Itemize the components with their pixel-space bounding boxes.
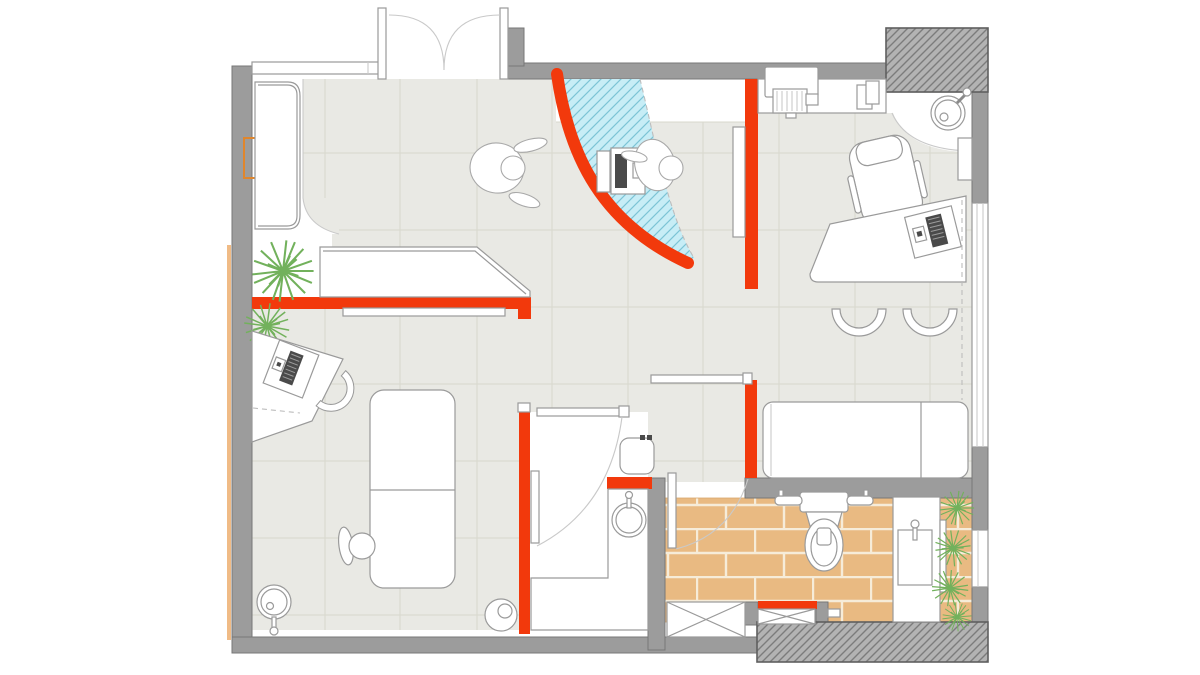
bath-pillar-1 bbox=[745, 602, 758, 625]
left-wall bbox=[232, 66, 252, 653]
pipe-stub bbox=[828, 609, 840, 617]
right-wall-lower bbox=[972, 587, 988, 622]
door-jamb-right bbox=[500, 8, 508, 79]
paper-sheet bbox=[866, 81, 879, 104]
waste-bin bbox=[485, 599, 517, 631]
duct-shaft-2 bbox=[758, 609, 815, 624]
top-wall bbox=[508, 63, 886, 79]
recovery-bed bbox=[763, 402, 968, 478]
door-leaf bbox=[537, 408, 622, 416]
accent-wall-vertical-left bbox=[519, 412, 530, 634]
right-wall-middle bbox=[972, 447, 988, 530]
window-top-left bbox=[252, 62, 383, 74]
duct-shaft-1 bbox=[667, 602, 745, 637]
window-right-lower bbox=[972, 530, 988, 587]
reception-desk-front bbox=[343, 308, 505, 316]
structural-column bbox=[886, 28, 988, 92]
right-wall-upper bbox=[972, 92, 988, 203]
accent-wall-endcap bbox=[518, 309, 531, 319]
door-swing-right bbox=[444, 15, 500, 70]
wall-bench bbox=[255, 82, 300, 229]
exam-bed bbox=[370, 390, 455, 588]
window-right-upper bbox=[972, 203, 988, 447]
door-track bbox=[743, 373, 752, 384]
accent-strip-bathroom bbox=[758, 601, 817, 609]
sliding-door-lower bbox=[651, 375, 743, 383]
bathroom-door-leaf bbox=[668, 473, 676, 548]
top-wall-tab bbox=[508, 28, 524, 66]
accent-strip-counter bbox=[607, 477, 652, 489]
door-track bbox=[518, 403, 530, 412]
bottom-wall bbox=[232, 637, 757, 653]
floor-plan-drawing bbox=[0, 0, 1200, 675]
water-heater bbox=[620, 435, 654, 474]
washroom-bathroom-wall bbox=[648, 478, 665, 650]
structural-block-bottom bbox=[757, 622, 988, 662]
wall-cabinet bbox=[958, 138, 972, 180]
accent-wall-vertical-top bbox=[745, 79, 758, 289]
door-jamb-left bbox=[378, 8, 386, 79]
vanity-counter bbox=[893, 497, 946, 622]
floor-plan bbox=[0, 0, 1200, 675]
door-swing-left bbox=[389, 15, 444, 70]
wall-radiator bbox=[531, 471, 539, 543]
sliding-door-upper bbox=[733, 127, 745, 237]
accent-wall-vertical-mid bbox=[745, 380, 757, 478]
door-stop bbox=[619, 406, 629, 417]
exterior-trim-line bbox=[227, 245, 231, 640]
